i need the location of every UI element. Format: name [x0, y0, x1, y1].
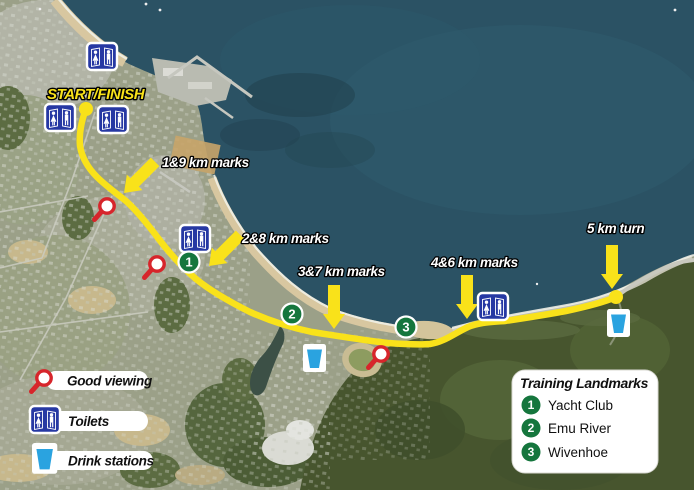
- landmark-number: 2: [528, 421, 535, 435]
- route-marker-3: 3: [396, 317, 417, 338]
- legend-label: Drink stations: [68, 454, 155, 469]
- route-marker-number: 2: [288, 307, 295, 322]
- training-landmarks-box: Training Landmarks 1 Yacht Club 2 Emu Ri…: [512, 370, 658, 473]
- landmark-item-1: 1 Yacht Club: [522, 396, 614, 415]
- toilets-icon: [478, 293, 508, 320]
- drink-station-icon: [607, 309, 630, 337]
- route-marker-2: 2: [282, 304, 303, 325]
- toilets-icon: [30, 406, 60, 433]
- km-label-4and6: 4&6 km marks: [430, 255, 519, 270]
- landmark-item-3: 3 Wivenhoe: [522, 443, 609, 462]
- toilets-icon: [45, 104, 75, 131]
- km-label-5turn: 5 km turn: [587, 221, 644, 236]
- route-marker-number: 3: [402, 320, 409, 335]
- legend-label: Good viewing: [67, 374, 153, 389]
- drink-station-icon: [32, 443, 57, 474]
- landmark-label: Emu River: [548, 421, 612, 436]
- landmarks-title: Training Landmarks: [520, 375, 649, 391]
- route-marker-1: 1: [179, 252, 200, 273]
- start-finish-label: START/FINISH: [47, 86, 146, 103]
- landmark-number: 3: [528, 445, 535, 459]
- legend: Good viewing Toilets Drink stations: [30, 371, 155, 474]
- landmark-label: Wivenhoe: [548, 445, 608, 460]
- map-canvas: 1 2 3 START/FINISH 1&9 km marks 2&8 km m…: [0, 0, 694, 490]
- drink-station-icon: [303, 344, 326, 372]
- toilets-icon: [98, 106, 128, 133]
- route-marker-number: 1: [185, 255, 192, 270]
- landmark-label: Yacht Club: [548, 398, 613, 413]
- km-label-2and8: 2&8 km marks: [241, 231, 330, 246]
- toilets-icon: [180, 225, 210, 252]
- landmark-number: 1: [528, 398, 535, 412]
- legend-label: Toilets: [68, 414, 110, 429]
- km-label-1and9: 1&9 km marks: [162, 155, 250, 170]
- start-finish-dot: [79, 102, 93, 116]
- km-label-3and7: 3&7 km marks: [298, 264, 386, 279]
- turn-dot: [609, 290, 623, 304]
- toilets-icon: [87, 43, 117, 70]
- course-map: 1 2 3 START/FINISH 1&9 km marks 2&8 km m…: [0, 0, 694, 490]
- landmark-item-2: 2 Emu River: [522, 419, 612, 438]
